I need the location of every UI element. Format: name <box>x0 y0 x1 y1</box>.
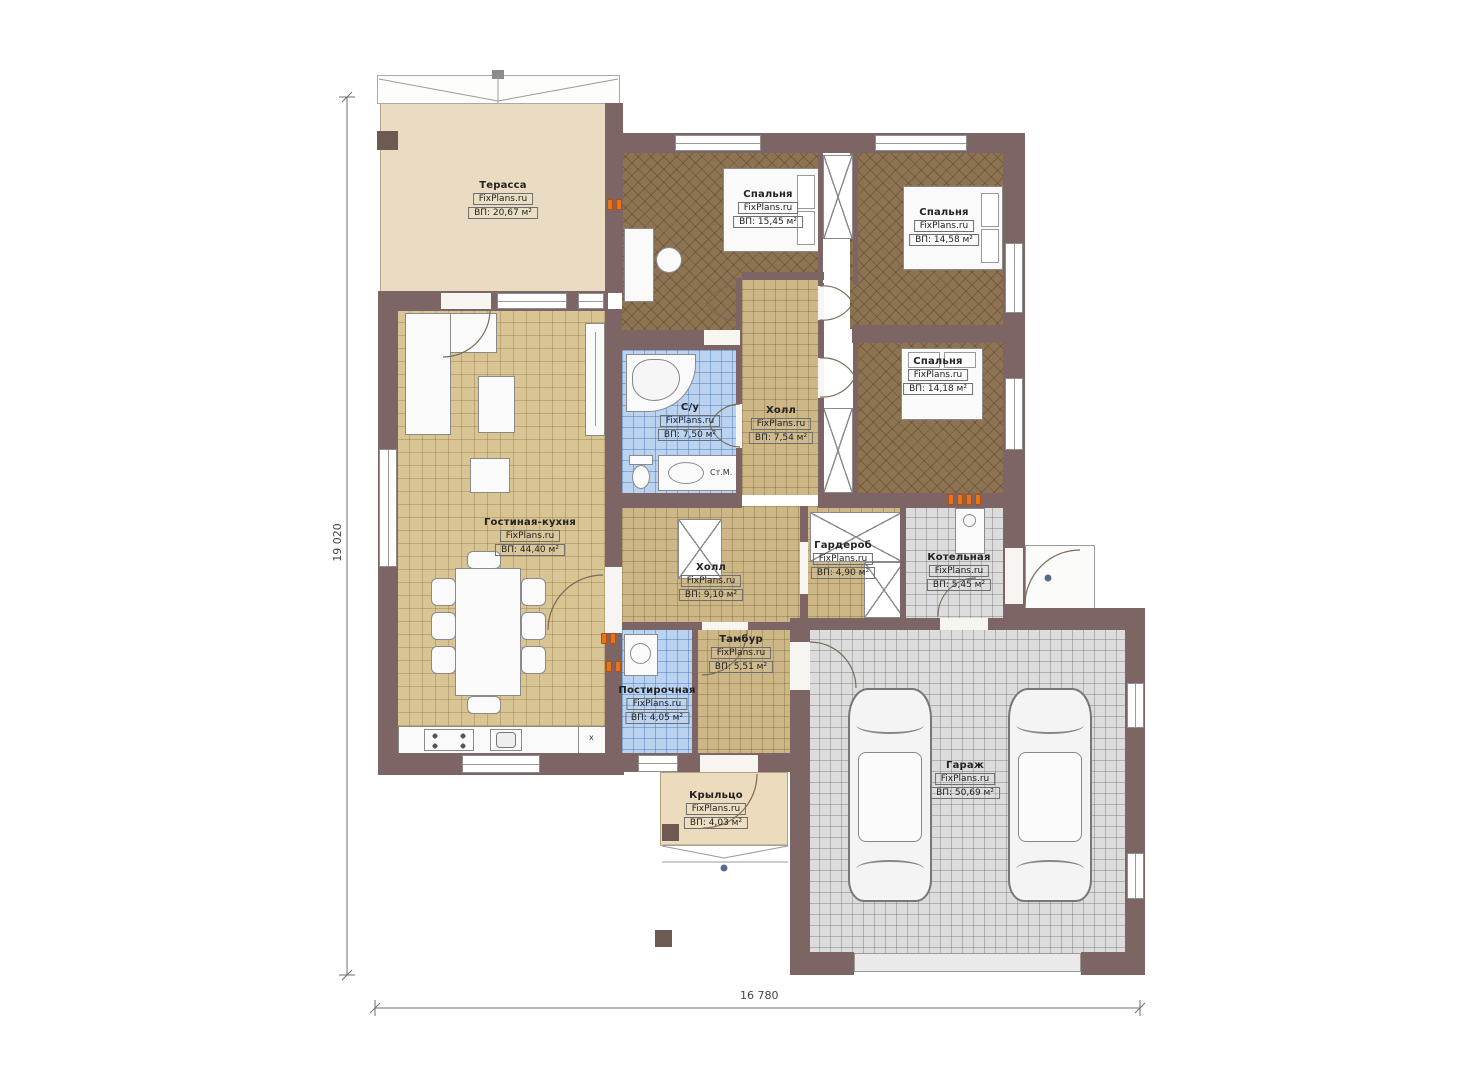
room-brand: FixPlans.ru <box>935 773 995 785</box>
room-name: Спальня <box>919 207 968 218</box>
room-label-hall-upper: Холл FixPlans.ru ВП: 7,54 м² <box>749 405 813 444</box>
room-name: С/у <box>681 402 699 413</box>
chair <box>521 578 546 606</box>
room-brand: FixPlans.ru <box>686 803 746 815</box>
room-label-bedroom-1: Спальня FixPlans.ru ВП: 15,45 м² <box>733 189 803 228</box>
garage-door <box>854 953 1081 972</box>
roof-ridge-marker <box>492 70 504 79</box>
room-name: Крыльцо <box>689 790 743 801</box>
car <box>848 688 932 902</box>
room-label-porch: Крыльцо FixPlans.ru ВП: 4,03 м² <box>684 790 748 829</box>
kitchen-sink-basin <box>496 732 516 748</box>
room-area: ВП: 5,51 м² <box>709 661 773 673</box>
wall <box>608 493 742 508</box>
radiator-marker <box>606 661 621 672</box>
chair <box>521 612 546 640</box>
coffee-table <box>478 376 515 433</box>
room-brand: FixPlans.ru <box>751 418 811 430</box>
wall <box>853 330 858 495</box>
room-label-living-kitchen: Гостиная-кухня FixPlans.ru ВП: 44,40 м² <box>484 517 576 556</box>
terrace-roof <box>377 75 620 104</box>
dining-table <box>455 568 521 696</box>
closet <box>823 408 853 493</box>
chair <box>467 696 501 714</box>
chair <box>521 646 546 674</box>
room-name: Спальня <box>743 189 792 200</box>
room-area: ВП: 9,10 м² <box>679 589 743 601</box>
closet <box>823 155 853 239</box>
room-label-hall-lower: Холл FixPlans.ru ВП: 9,10 м² <box>679 562 743 601</box>
site-marker <box>655 930 672 947</box>
window <box>462 755 540 773</box>
room-area: ВП: 44,40 м² <box>495 544 565 556</box>
room-name: Постирочная <box>618 685 695 696</box>
wall <box>378 291 608 311</box>
room-brand: FixPlans.ru <box>813 553 873 565</box>
wall <box>1081 952 1145 975</box>
wall <box>605 103 623 293</box>
room-label-garage: Гараж FixPlans.ru ВП: 50,69 м² <box>930 760 1000 799</box>
desk <box>624 228 654 302</box>
window <box>379 449 397 567</box>
door-opening <box>605 567 622 633</box>
room-label-boiler-room: Котельная FixPlans.ru ВП: 5,45 м² <box>927 552 991 591</box>
window <box>1127 683 1144 728</box>
window <box>1005 243 1023 313</box>
room-label-terrace: Терасса FixPlans.ru ВП: 20,67 м² <box>468 180 538 219</box>
chair <box>431 646 456 674</box>
room-area: ВП: 20,67 м² <box>468 207 538 219</box>
door-opening <box>702 622 748 630</box>
room-area: ВП: 15,45 м² <box>733 216 803 228</box>
wall <box>818 493 1025 508</box>
stove <box>424 729 474 751</box>
wall <box>818 153 823 285</box>
radiator-marker <box>948 494 981 505</box>
hall-upper-floor <box>742 278 818 495</box>
room-label-bedroom-2: Спальня FixPlans.ru ВП: 14,58 м² <box>909 207 979 246</box>
window <box>1005 378 1023 450</box>
window <box>578 293 604 309</box>
kitchen-unit-label: x <box>589 733 594 742</box>
room-brand: FixPlans.ru <box>711 647 771 659</box>
terrace-post <box>377 131 398 150</box>
room-label-tambour: Тамбур FixPlans.ru ВП: 5,51 м² <box>709 634 773 673</box>
radiator-marker <box>607 199 622 210</box>
window <box>1127 853 1144 899</box>
door-opening <box>790 642 810 690</box>
room-name: Холл <box>766 405 796 416</box>
exterior-step <box>1025 545 1095 610</box>
bath-sink <box>668 462 704 484</box>
door-opening <box>704 330 740 345</box>
room-area: ВП: 4,03 м² <box>684 817 748 829</box>
wall <box>853 153 858 285</box>
window <box>675 135 761 151</box>
car <box>1008 688 1092 902</box>
dimension-width: 16 780 <box>740 989 779 1002</box>
door-opening <box>700 755 758 772</box>
sofa-chaise <box>405 313 451 435</box>
wall <box>790 952 854 975</box>
door-opening <box>1005 548 1023 604</box>
toilet-tank <box>629 455 653 465</box>
room-brand: FixPlans.ru <box>914 220 974 232</box>
floor-plan-canvas: Терасса FixPlans.ru ВП: 20,67 м² Спальня… <box>0 0 1474 1080</box>
door-opening <box>736 404 742 448</box>
boiler-dial <box>963 514 976 527</box>
wall <box>1125 608 1145 975</box>
room-label-laundry: Постирочная FixPlans.ru ВП: 4,05 м² <box>618 685 695 724</box>
room-area: ВП: 7,50 м² <box>658 429 722 441</box>
room-name: Гардероб <box>814 540 872 551</box>
room-label-bedroom-3: Спальня FixPlans.ru ВП: 14,18 м² <box>903 356 973 395</box>
chair <box>431 612 456 640</box>
wall <box>900 506 906 620</box>
room-name: Гостиная-кухня <box>484 517 576 528</box>
room-brand: FixPlans.ru <box>627 698 687 710</box>
dimension-height: 19 020 <box>331 523 344 562</box>
radiator-marker <box>601 633 616 644</box>
room-name: Терасса <box>479 180 527 191</box>
tv-stand <box>585 323 605 436</box>
window <box>497 293 567 309</box>
room-area: ВП: 7,54 м² <box>749 432 813 444</box>
door-opening <box>940 618 988 630</box>
room-area: ВП: 14,18 м² <box>903 383 973 395</box>
room-area: ВП: 5,45 м² <box>927 579 991 591</box>
room-name: Котельная <box>927 552 990 563</box>
washing-machine-drum <box>630 643 651 664</box>
room-area: ВП: 50,69 м² <box>930 787 1000 799</box>
door-opening <box>441 293 491 309</box>
room-brand: FixPlans.ru <box>500 530 560 542</box>
window <box>875 135 967 151</box>
room-brand: FixPlans.ru <box>473 193 533 205</box>
room-name: Холл <box>696 562 726 573</box>
wall <box>1005 608 1145 630</box>
room-brand: FixPlans.ru <box>929 565 989 577</box>
room-label-wardrobe: Гардероб FixPlans.ru ВП: 4,90 м² <box>811 540 875 579</box>
room-area: ВП: 4,05 м² <box>625 712 689 724</box>
room-name: Спальня <box>913 356 962 367</box>
wall <box>736 278 742 495</box>
door-opening <box>800 542 808 594</box>
pouf <box>470 458 510 493</box>
washing-machine-label: Ст.М. <box>710 468 732 477</box>
room-area: ВП: 14,58 м² <box>909 234 979 246</box>
room-brand: FixPlans.ru <box>681 575 741 587</box>
room-brand: FixPlans.ru <box>738 202 798 214</box>
room-area: ВП: 4,90 м² <box>811 567 875 579</box>
wall <box>742 272 824 280</box>
door-opening <box>818 286 824 320</box>
door-opening <box>818 358 824 398</box>
room-brand: FixPlans.ru <box>660 415 720 427</box>
room-label-bathroom: С/у FixPlans.ru ВП: 7,50 м² <box>658 402 722 441</box>
room-name: Гараж <box>946 760 984 771</box>
room-name: Тамбур <box>719 634 763 645</box>
chair <box>431 578 456 606</box>
porch-post <box>662 824 679 841</box>
desk-chair <box>656 247 682 273</box>
window <box>638 755 678 772</box>
toilet-bowl <box>632 465 650 489</box>
wall <box>852 325 1005 343</box>
room-brand: FixPlans.ru <box>908 369 968 381</box>
